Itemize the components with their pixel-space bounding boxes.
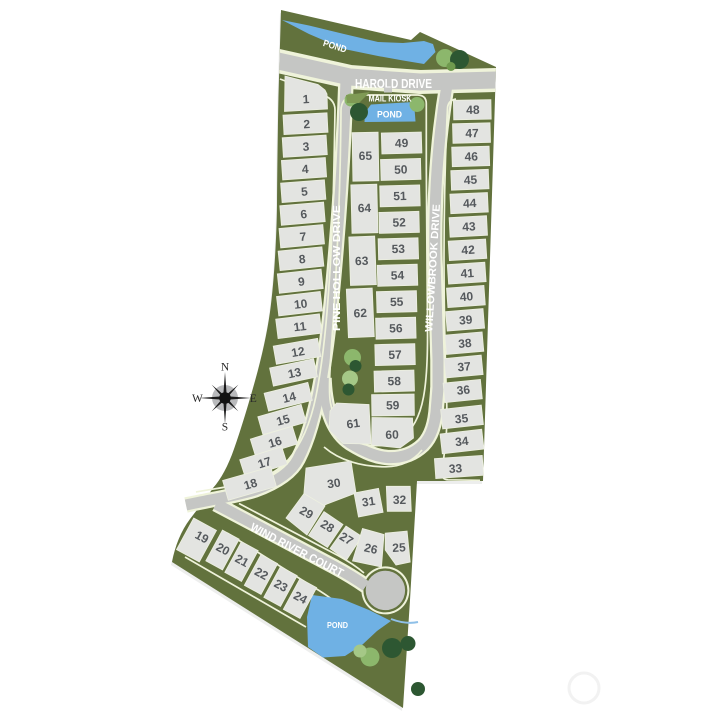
svg-text:HAROLD DRIVE: HAROLD DRIVE [355,76,432,91]
svg-text:62: 62 [353,306,367,321]
svg-text:63: 63 [355,254,369,268]
svg-text:59: 59 [386,398,400,412]
svg-text:36: 36 [456,382,471,397]
svg-text:POND: POND [327,621,348,630]
svg-text:61: 61 [346,416,361,432]
svg-text:42: 42 [461,243,475,258]
svg-text:W: W [192,393,203,405]
svg-text:50: 50 [394,162,408,176]
svg-text:1: 1 [302,92,310,106]
svg-text:46: 46 [464,149,478,163]
svg-text:56: 56 [389,321,403,335]
svg-text:30: 30 [326,475,342,491]
svg-text:POND: POND [377,110,402,121]
svg-text:64: 64 [358,201,372,215]
svg-text:49: 49 [395,136,409,150]
svg-text:57: 57 [388,348,402,362]
svg-text:44: 44 [463,196,477,211]
svg-text:10: 10 [293,296,308,311]
svg-text:52: 52 [392,215,406,229]
svg-text:39: 39 [458,313,473,328]
svg-text:55: 55 [390,295,404,309]
svg-text:12: 12 [290,344,306,360]
svg-text:60: 60 [385,428,399,442]
svg-text:43: 43 [462,219,476,234]
svg-text:58: 58 [387,374,401,388]
svg-text:MAIL KIOSK: MAIL KIOSK [369,94,412,104]
svg-text:34: 34 [454,434,469,449]
svg-text:N: N [221,362,230,374]
svg-text:47: 47 [465,126,479,140]
svg-text:41: 41 [460,266,475,281]
svg-text:38: 38 [458,336,473,351]
svg-text:32: 32 [393,493,407,507]
svg-text:33: 33 [448,461,463,476]
svg-text:4: 4 [301,162,309,176]
svg-text:31: 31 [361,494,376,510]
svg-text:37: 37 [457,359,472,374]
svg-text:45: 45 [464,173,478,188]
svg-text:51: 51 [393,189,407,203]
svg-text:35: 35 [454,411,469,426]
svg-text:53: 53 [391,242,405,256]
svg-text:11: 11 [293,319,308,334]
svg-text:40: 40 [459,289,474,304]
svg-text:65: 65 [359,149,373,163]
svg-text:PINE HOLLOW DRIVE: PINE HOLLOW DRIVE [331,205,343,331]
svg-text:48: 48 [466,103,480,117]
svg-text:E: E [250,393,257,405]
svg-text:54: 54 [391,268,405,282]
svg-text:3: 3 [302,139,310,153]
svg-text:2: 2 [303,117,311,131]
svg-text:S: S [222,422,228,434]
svg-text:25: 25 [392,540,406,555]
